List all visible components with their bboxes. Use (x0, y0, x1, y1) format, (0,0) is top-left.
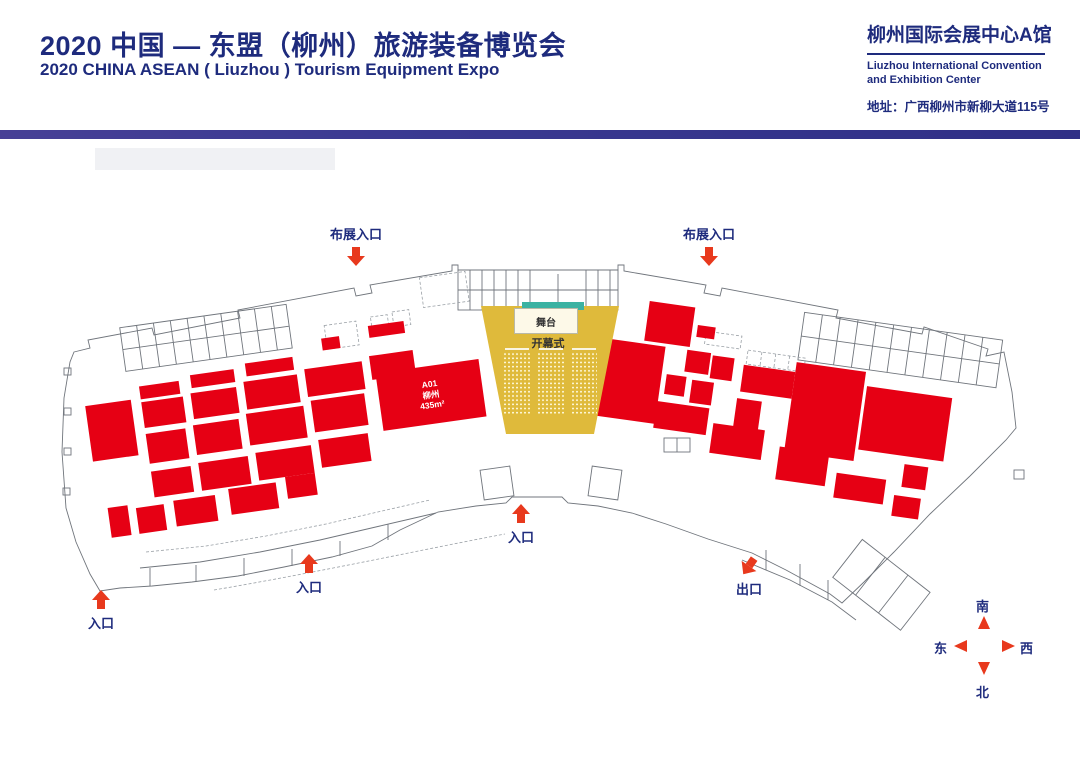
seating-block-left (503, 352, 531, 414)
down-arrow-icon (700, 246, 718, 266)
setup-entrance-right: 布展入口 (683, 224, 735, 266)
booth (198, 456, 251, 491)
setup-entrance-right-label: 布展入口 (683, 224, 735, 243)
booth-label-line: 435m² (420, 398, 446, 412)
compass-north-label: 北 (976, 682, 989, 701)
booth (664, 374, 687, 397)
booth-large-square (85, 400, 138, 462)
compass-south-label: 南 (976, 596, 989, 615)
seating-header-left (505, 348, 529, 350)
seating-block-right (571, 352, 597, 414)
entrance-mid-left: 入口 (296, 554, 322, 596)
booth (833, 473, 886, 505)
booth (243, 374, 300, 409)
booth (190, 387, 239, 419)
booth (246, 406, 308, 446)
exit-right: 出口 (736, 556, 762, 598)
compass-right-arrow-icon (1002, 640, 1015, 652)
booth (108, 505, 132, 537)
booth (891, 495, 921, 520)
entrance-mid-left-label: 入口 (296, 577, 322, 596)
booth (304, 361, 365, 397)
booth (193, 419, 243, 455)
booth (318, 433, 371, 468)
entrance-far-left: 入口 (88, 590, 114, 632)
entrance-center: 入口 (508, 504, 534, 546)
booth (146, 428, 190, 463)
booth (653, 401, 709, 435)
up-arrow-icon (300, 554, 318, 574)
seating-header-center (539, 348, 563, 350)
entrance-center-label: 入口 (508, 527, 534, 546)
booth (644, 301, 695, 347)
booth (190, 369, 235, 388)
down-arrow-icon (347, 246, 365, 266)
seating-header-right (572, 348, 596, 350)
booth (285, 473, 318, 499)
compass-west-label: 西 (1020, 638, 1033, 657)
booth (141, 396, 186, 428)
booth (228, 482, 279, 514)
setup-entrance-left-label: 布展入口 (330, 224, 382, 243)
stage: 舞台 (514, 308, 578, 334)
booth (775, 447, 829, 487)
compass: 南 北 东 西 (928, 596, 1040, 700)
booth (684, 350, 711, 375)
booth-large-b (858, 386, 952, 461)
booth (136, 504, 167, 534)
setup-entrance-left: 布展入口 (330, 224, 382, 266)
booth (173, 495, 218, 527)
booth-large-a (784, 362, 866, 461)
booth (368, 321, 405, 338)
booth (311, 393, 369, 432)
booth (689, 380, 714, 406)
compass-down-arrow-icon (978, 662, 990, 675)
booth (151, 466, 194, 497)
booth (321, 336, 340, 350)
exit-right-label: 出口 (736, 579, 762, 598)
seating-block-center (537, 352, 565, 414)
booth (710, 355, 735, 381)
up-arrow-icon (512, 504, 530, 524)
booth (696, 325, 715, 339)
booth (901, 464, 928, 490)
booth (245, 357, 294, 377)
compass-east-label: 东 (934, 638, 947, 657)
up-arrow-icon (92, 590, 110, 610)
entrance-far-left-label: 入口 (88, 613, 114, 632)
down-left-arrow-icon (736, 553, 762, 580)
compass-up-arrow-icon (978, 616, 990, 629)
compass-left-arrow-icon (954, 640, 967, 652)
booth (709, 423, 765, 460)
booth (740, 365, 795, 399)
